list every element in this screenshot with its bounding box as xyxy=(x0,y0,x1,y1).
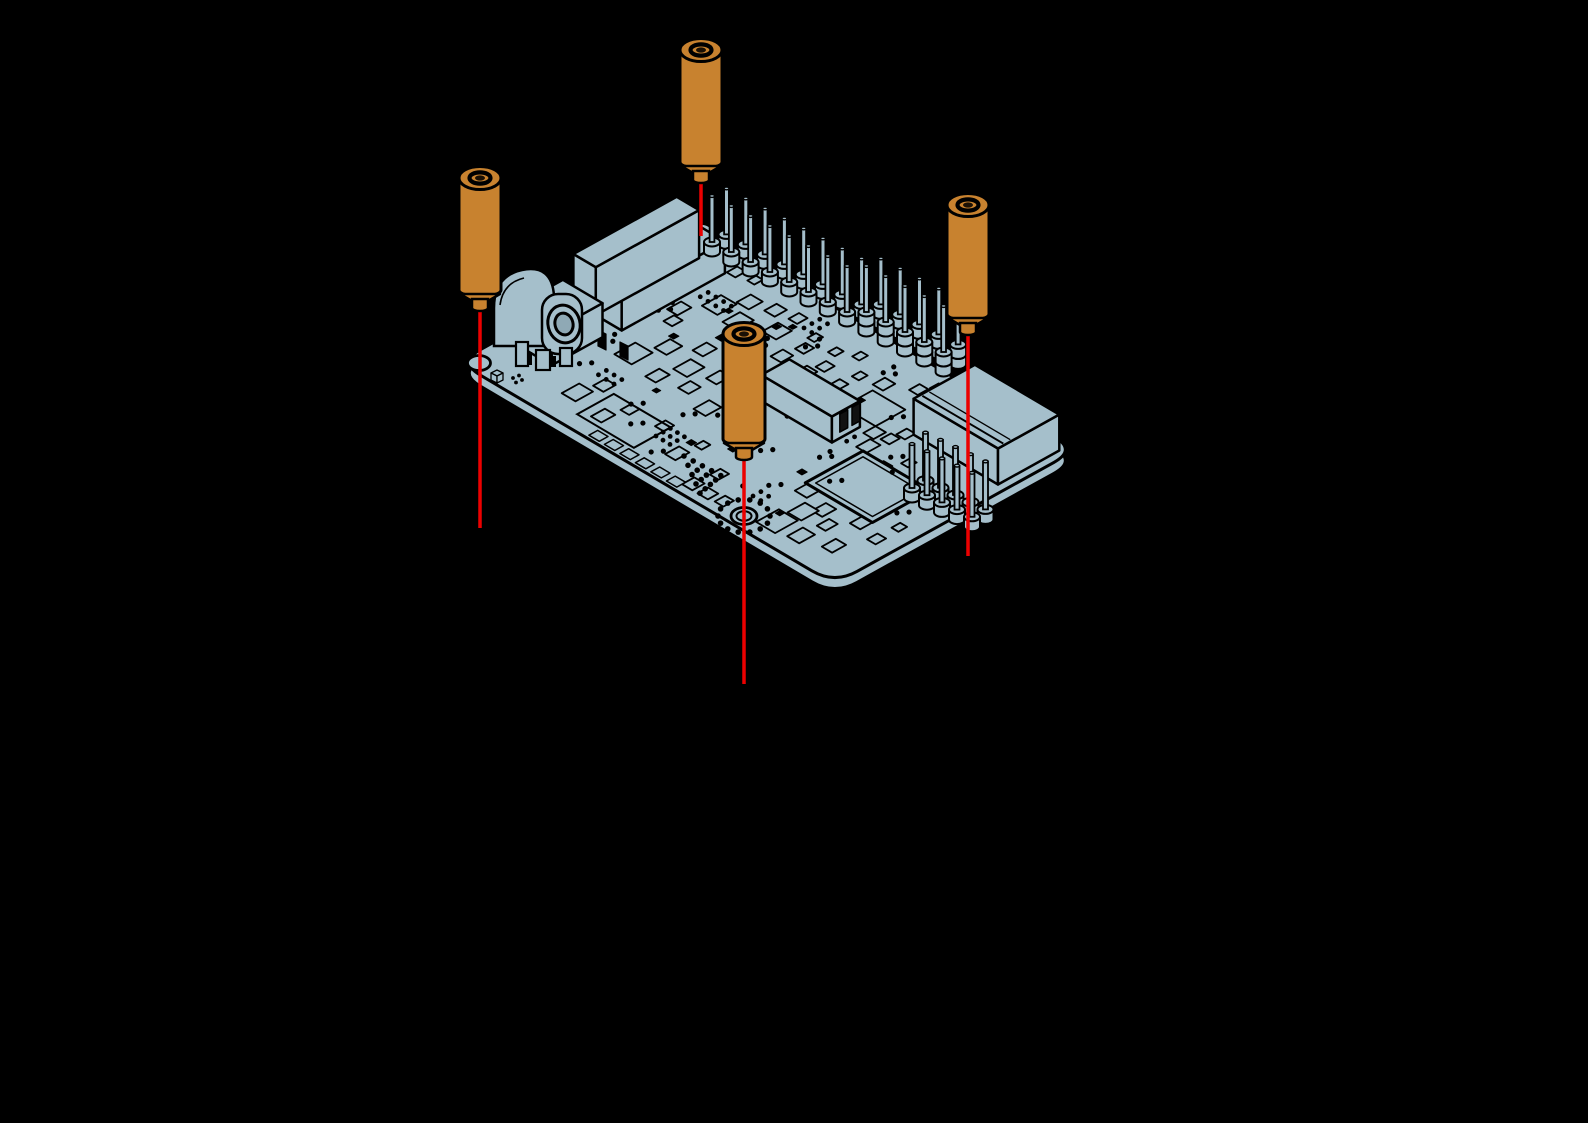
standoff-installation-diagram: Attaching brass standoffs to the circuit… xyxy=(0,0,1588,1123)
standoff-left xyxy=(459,167,501,312)
standoff-right xyxy=(947,194,989,336)
standoff-middle xyxy=(723,323,765,461)
cube-icon xyxy=(491,370,503,383)
standoff-top xyxy=(680,39,722,184)
